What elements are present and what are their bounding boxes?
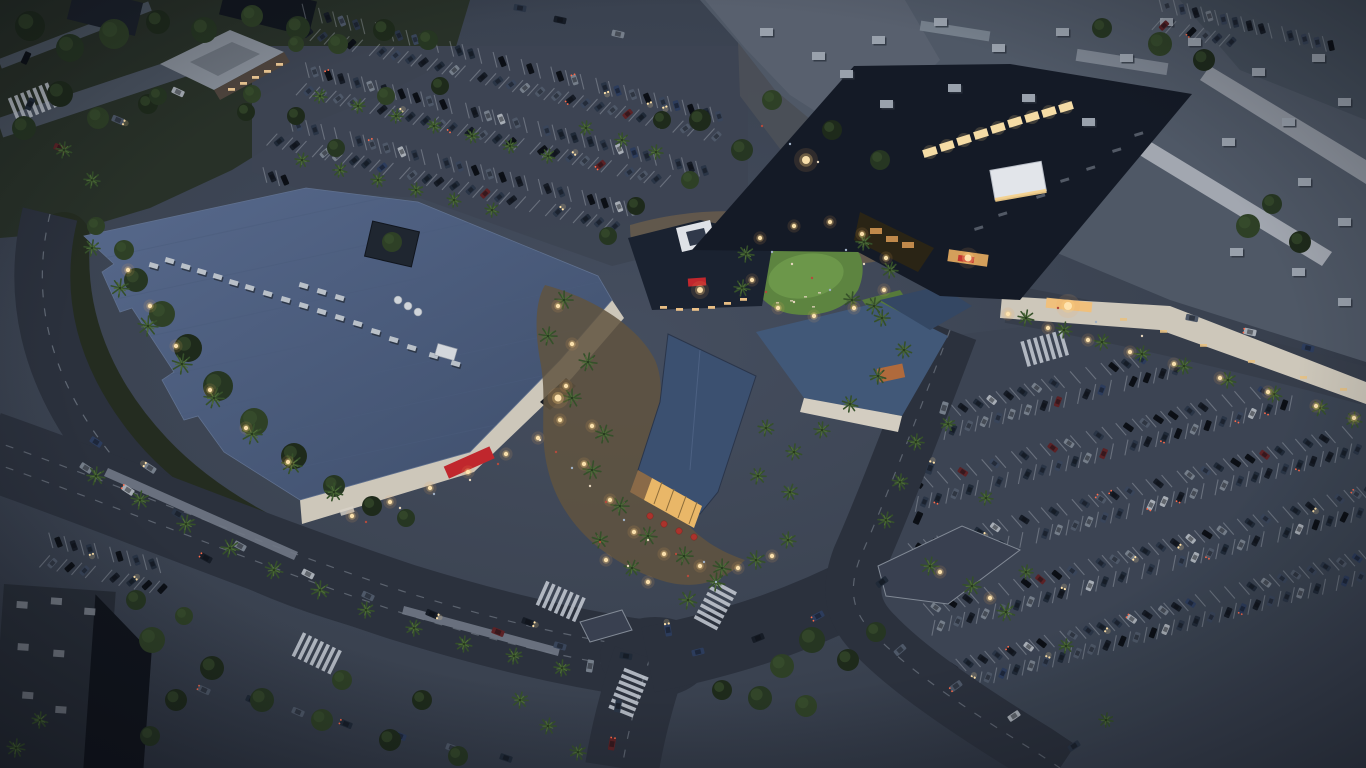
vignette: [0, 0, 1366, 768]
aerial-mall-photo: [0, 0, 1366, 768]
scene-canvas: [0, 0, 1366, 768]
